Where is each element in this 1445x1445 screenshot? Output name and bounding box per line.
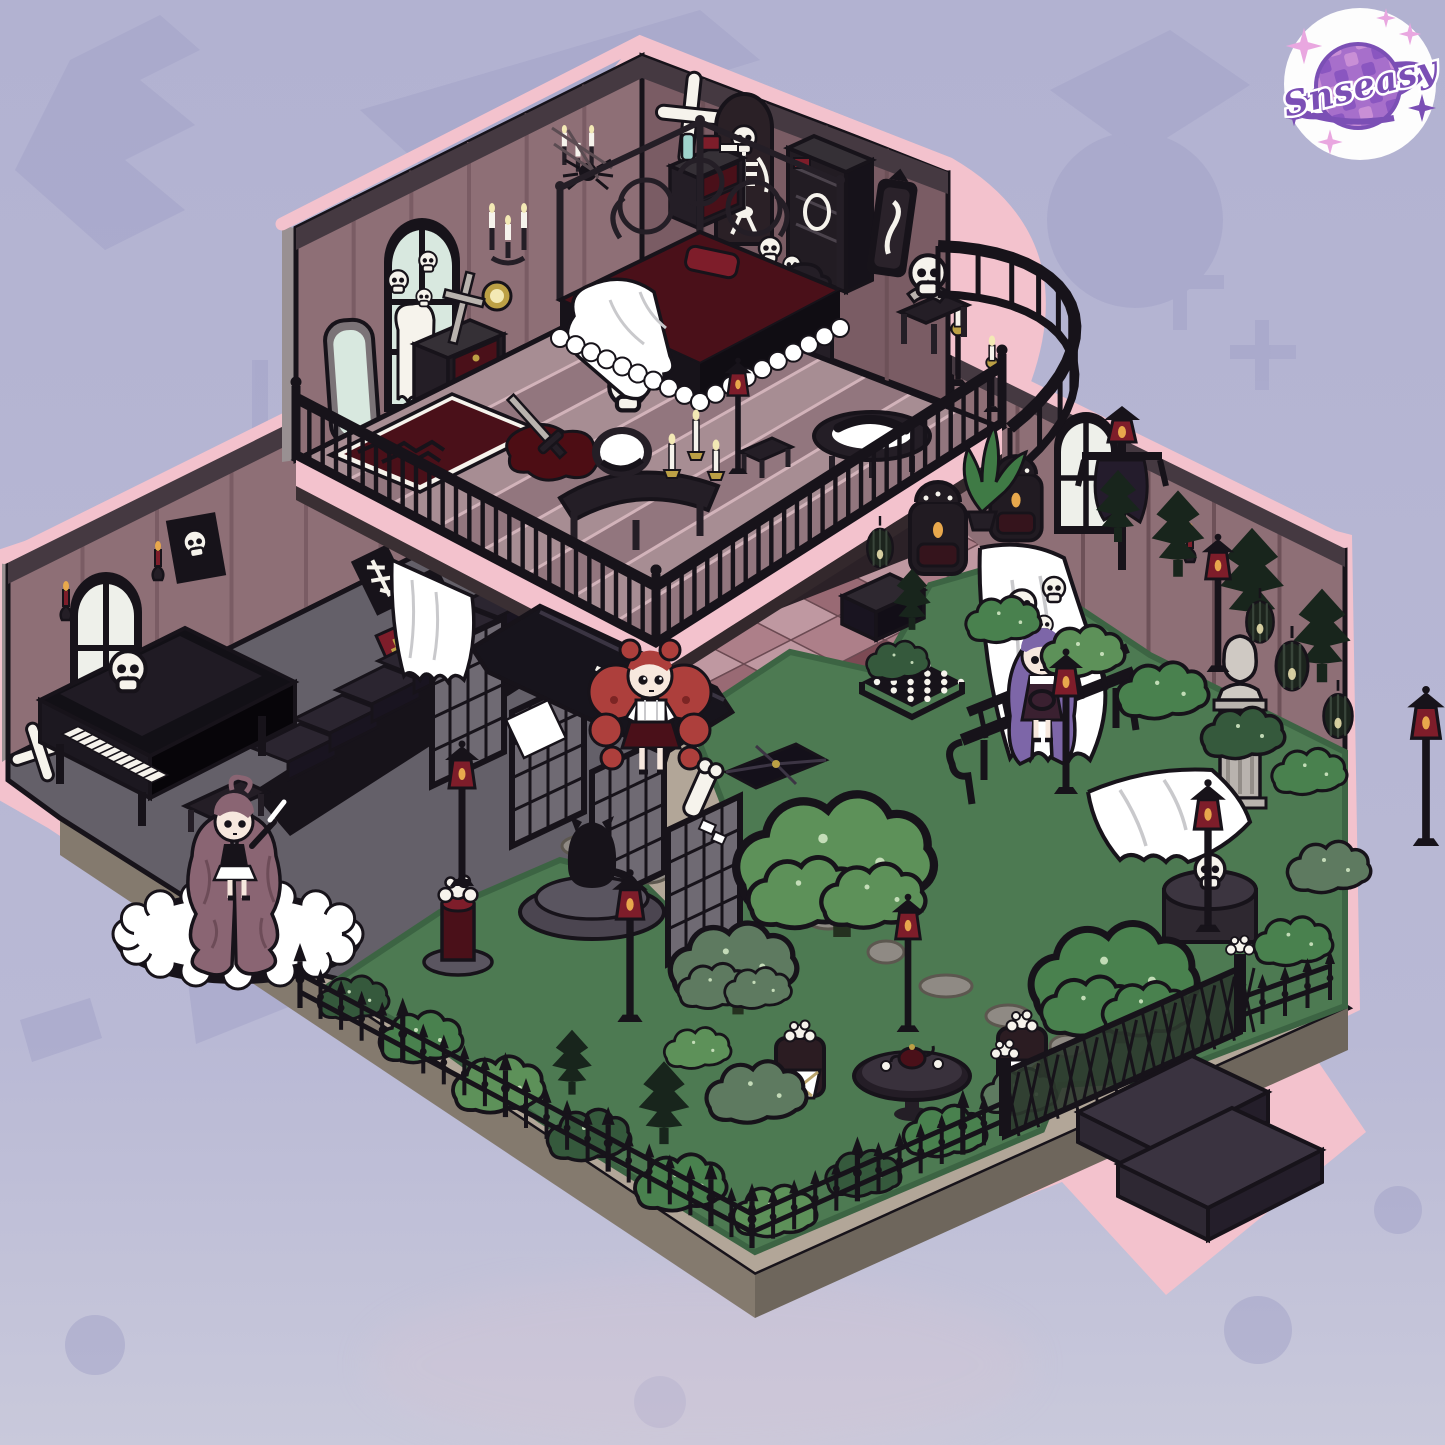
nightstand-with-potions bbox=[670, 134, 744, 228]
scene-canvas: Snseasy bbox=[0, 0, 1445, 1445]
haunted-dollhouse-scene: Snseasy bbox=[0, 0, 1445, 1445]
